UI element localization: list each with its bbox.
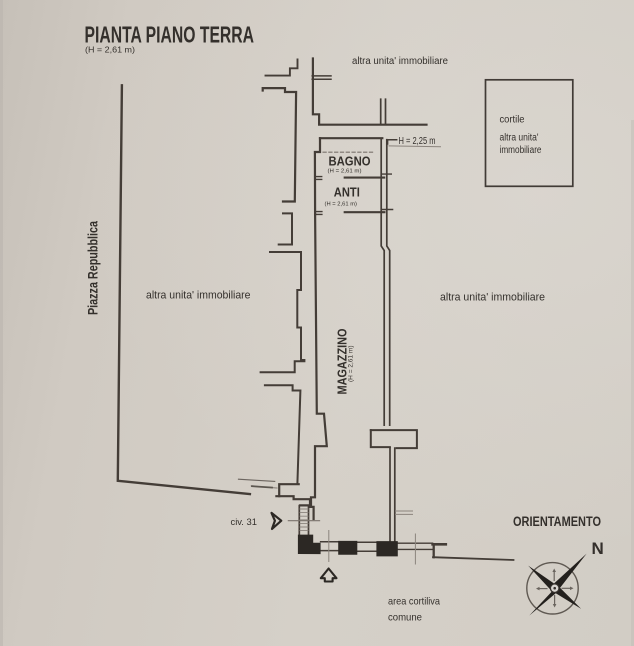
svg-text:altra unita': altra unita' bbox=[500, 133, 539, 144]
svg-text:ANTI: ANTI bbox=[334, 185, 360, 200]
svg-text:civ. 31: civ. 31 bbox=[231, 517, 258, 528]
svg-text:cortile: cortile bbox=[500, 115, 525, 126]
svg-text:PIANTA PIANO TERRA: PIANTA PIANO TERRA bbox=[85, 21, 255, 47]
svg-text:(H = 2,61 m): (H = 2,61 m) bbox=[325, 202, 358, 208]
svg-text:Piazza Repubblica: Piazza Repubblica bbox=[85, 221, 100, 315]
svg-text:altra unita' immobiliare: altra unita' immobiliare bbox=[440, 291, 545, 303]
svg-text:H = 2,25 m: H = 2,25 m bbox=[399, 136, 436, 147]
svg-text:(H = 2,61 m): (H = 2,61 m) bbox=[349, 346, 355, 383]
svg-text:BAGNO: BAGNO bbox=[329, 153, 371, 168]
svg-text:MAGAZZINO: MAGAZZINO bbox=[335, 329, 350, 395]
svg-text:altra unita' immobiliare: altra unita' immobiliare bbox=[352, 56, 448, 67]
svg-text:immobiliare: immobiliare bbox=[500, 145, 542, 156]
svg-text:N: N bbox=[592, 539, 604, 558]
svg-text:(H = 2,61 m): (H = 2,61 m) bbox=[85, 45, 135, 54]
svg-text:ORIENTAMENTO: ORIENTAMENTO bbox=[513, 514, 601, 529]
svg-text:altra unita' immobiliare: altra unita' immobiliare bbox=[146, 289, 251, 301]
svg-text:comune: comune bbox=[388, 612, 422, 624]
svg-text:area cortiliva: area cortiliva bbox=[388, 596, 440, 608]
svg-text:(H = 2,61 m): (H = 2,61 m) bbox=[328, 169, 362, 175]
